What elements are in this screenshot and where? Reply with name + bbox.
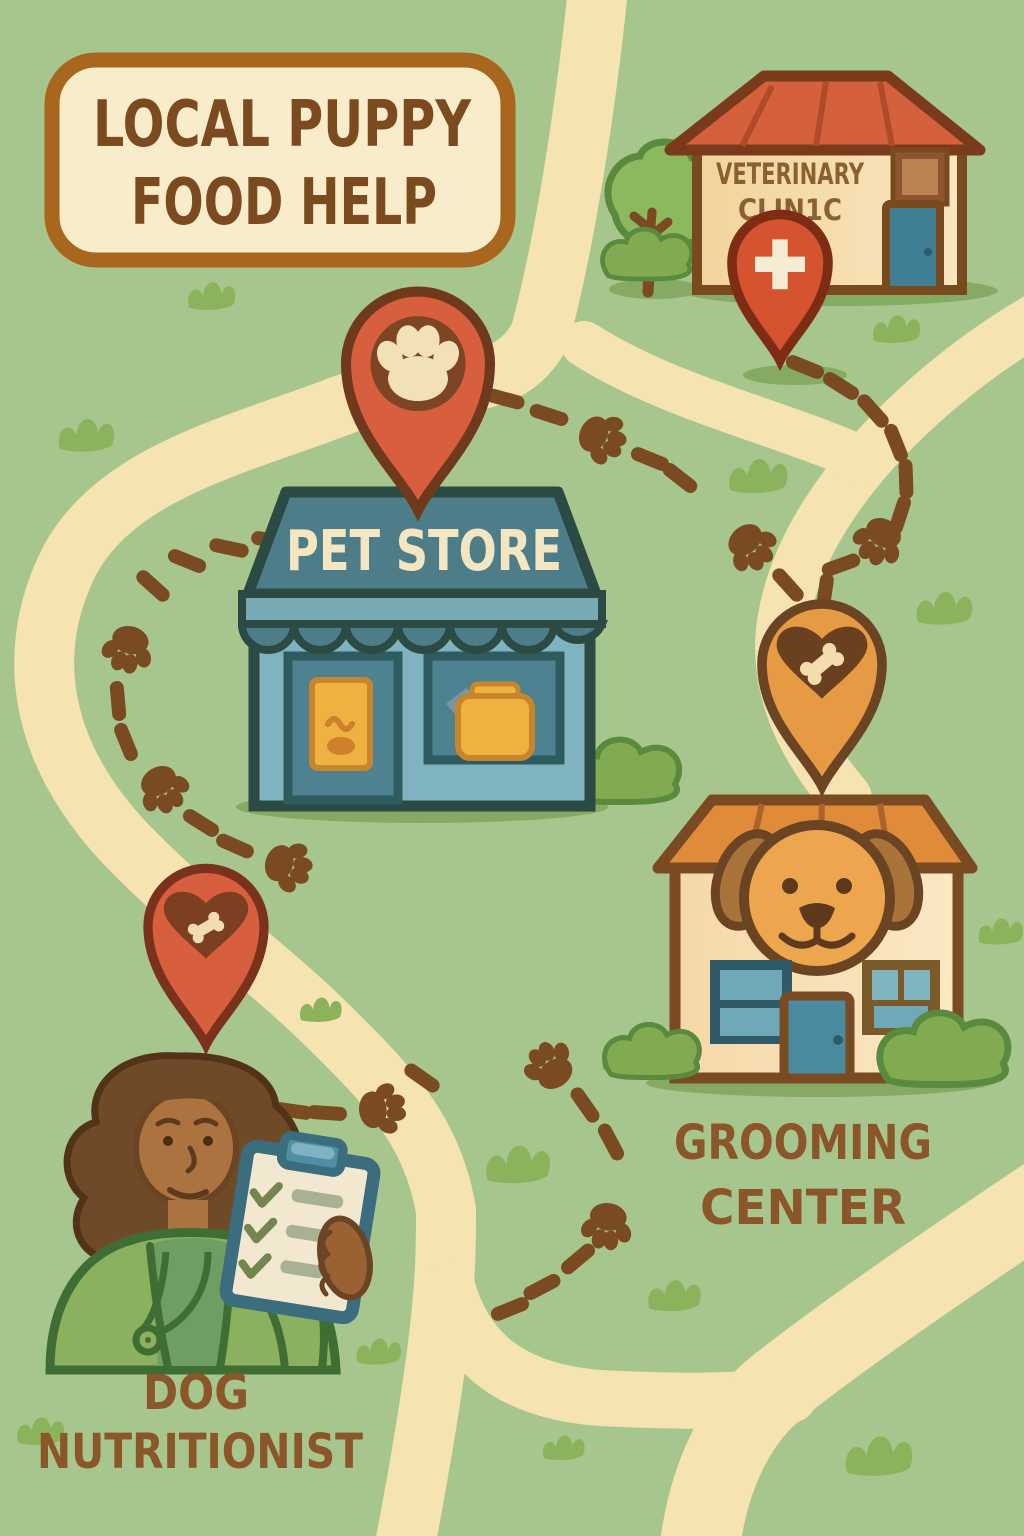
nutritionist-label-line2: NUTRITIONIST (37, 1424, 363, 1480)
title-banner: LOCAL PUPPY FOOD HELP (52, 60, 508, 260)
title-line1: LOCAL PUPPY (93, 88, 472, 162)
grooming-label-line2: CENTER (700, 1180, 906, 1236)
nutritionist-label-line1: DOG (143, 1365, 249, 1421)
title-line2: FOOD HELP (131, 166, 437, 240)
pet-store-sign-text: PET STORE (286, 519, 562, 584)
grooming-label-line1: GROOMING (674, 1115, 932, 1171)
face (136, 1092, 236, 1204)
vet-door (886, 204, 940, 290)
pet-store-building[interactable]: PET STORE (242, 492, 602, 806)
puppy-food-map: VETERINARY CLIN1C PET STORE (0, 0, 1024, 1536)
vet-sign-line1: VETERINARY (716, 157, 865, 191)
store-awning-band (242, 594, 602, 624)
